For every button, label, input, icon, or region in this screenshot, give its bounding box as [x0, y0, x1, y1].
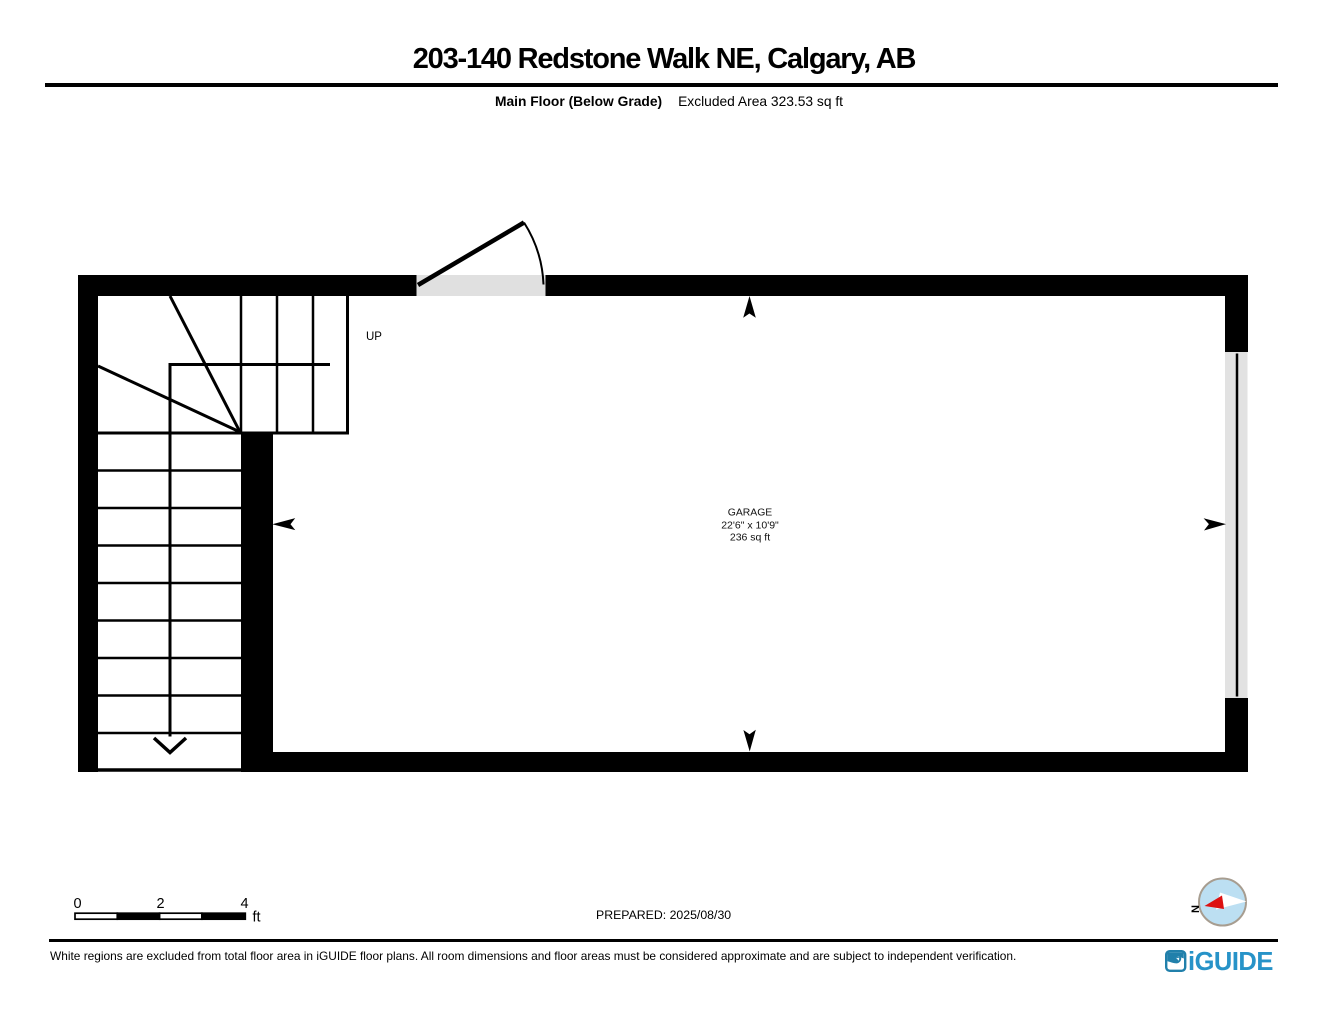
- svg-text:22'6" x 10'9": 22'6" x 10'9": [721, 520, 779, 532]
- svg-text:N: N: [1190, 905, 1202, 913]
- svg-text:236 sq ft: 236 sq ft: [730, 532, 770, 544]
- svg-text:ft: ft: [253, 910, 261, 926]
- svg-text:iGUIDE: iGUIDE: [1188, 948, 1273, 974]
- svg-text:2: 2: [156, 896, 164, 912]
- svg-text:4: 4: [240, 896, 248, 912]
- svg-text:UP: UP: [366, 331, 382, 343]
- svg-text:GARAGE: GARAGE: [728, 508, 773, 519]
- svg-text:0: 0: [73, 896, 81, 912]
